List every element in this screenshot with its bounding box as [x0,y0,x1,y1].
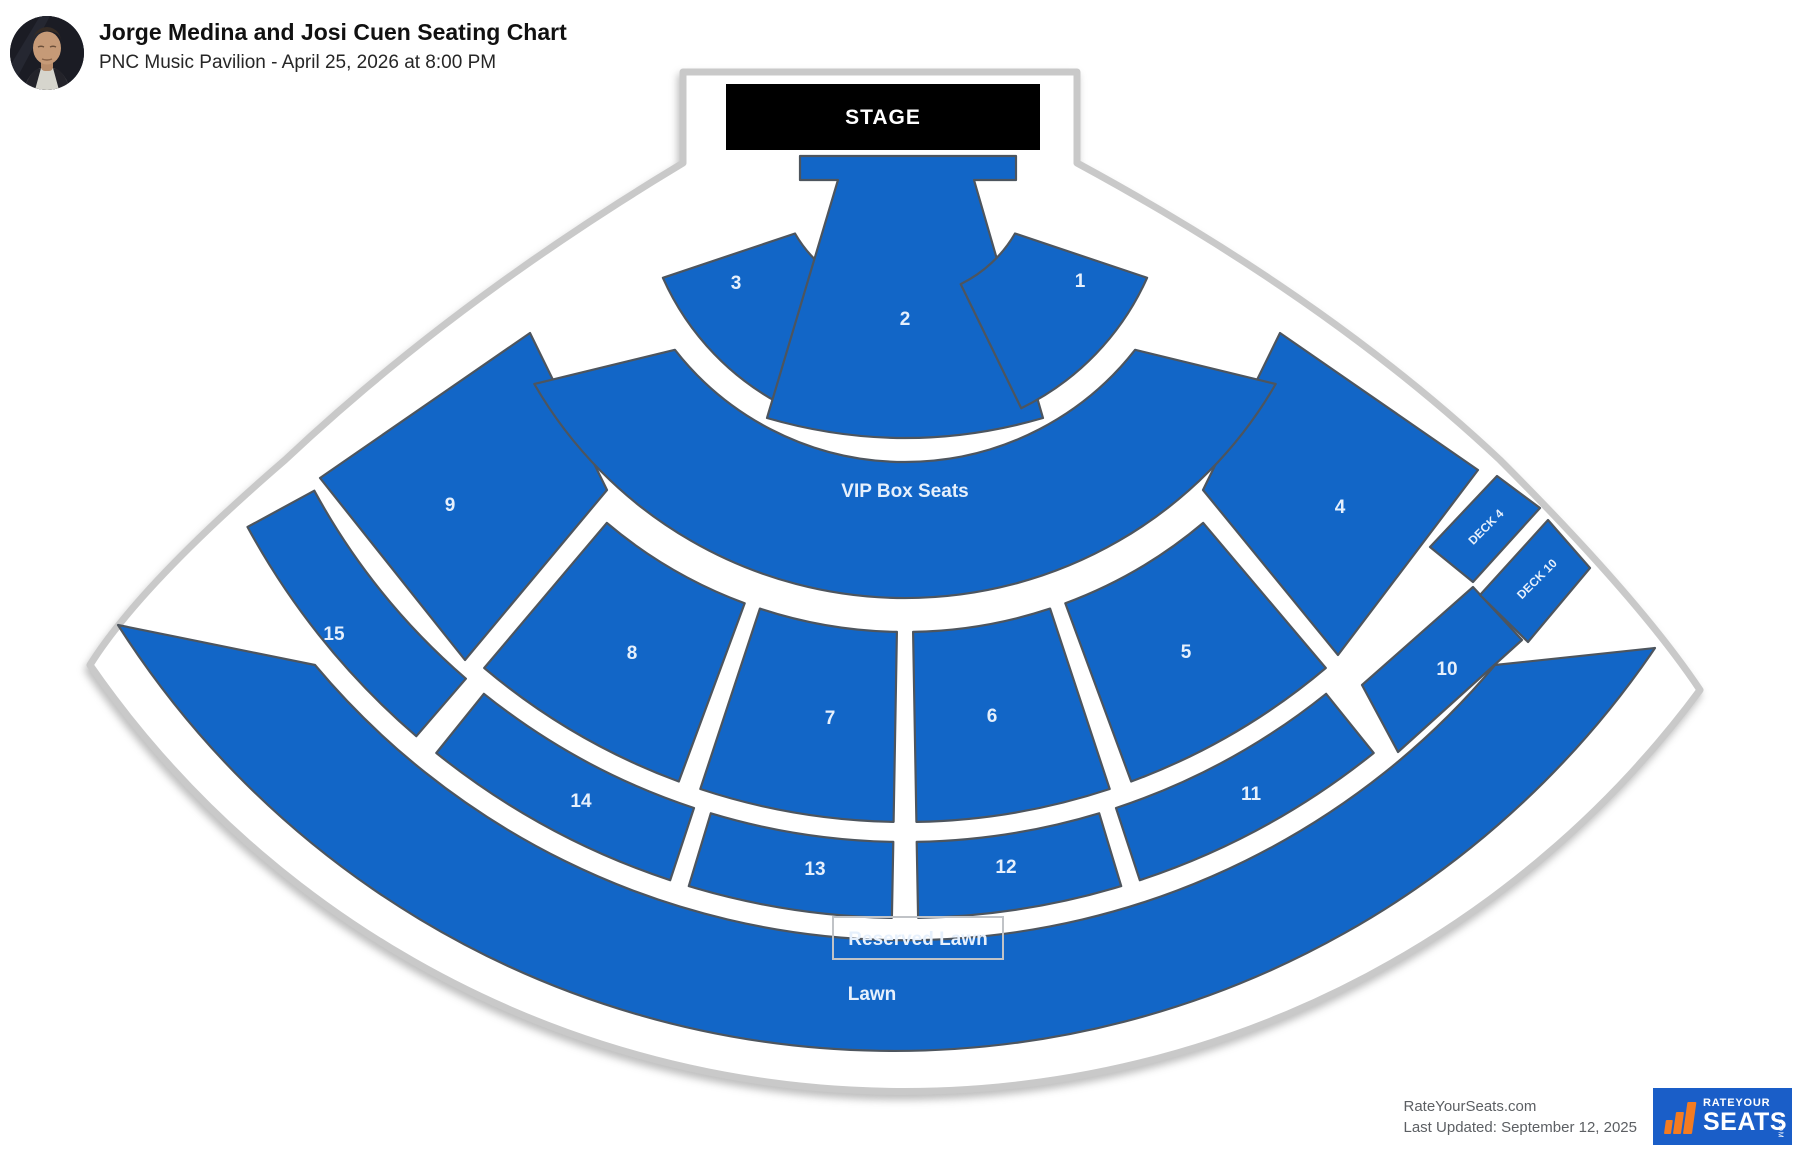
rateyourseats-logo[interactable]: RATEYOUR SEATS .COM [1653,1088,1792,1145]
page-title: Jorge Medina and Josi Cuen Seating Chart [99,20,567,45]
credits-updated: Last Updated: September 12, 2025 [1404,1117,1638,1138]
credits-site: RateYourSeats.com [1404,1096,1638,1117]
credits: RateYourSeats.com Last Updated: Septembe… [1404,1096,1638,1138]
logo-text-suffix: .COM [1776,1116,1783,1138]
stage: STAGE [726,84,1040,150]
footer: RateYourSeats.com Last Updated: Septembe… [1404,1088,1793,1145]
artist-avatar [10,16,84,90]
header: Jorge Medina and Josi Cuen Seating Chart… [10,16,567,90]
logo-text-main: SEATS [1703,1110,1787,1135]
seating-chart-page: Jorge Medina and Josi Cuen Seating Chart… [0,0,1800,1155]
stage-label: STAGE [845,106,921,129]
logo-bars-icon [1663,1098,1697,1136]
event-subtitle: PNC Music Pavilion - April 25, 2026 at 8… [99,52,567,74]
logo-text: RATEYOUR SEATS [1703,1098,1787,1135]
seating-map: STAGE Lawn151413121110DECK 4DECK 1098765… [0,0,1800,1155]
artist-photo-placeholder [10,16,84,90]
